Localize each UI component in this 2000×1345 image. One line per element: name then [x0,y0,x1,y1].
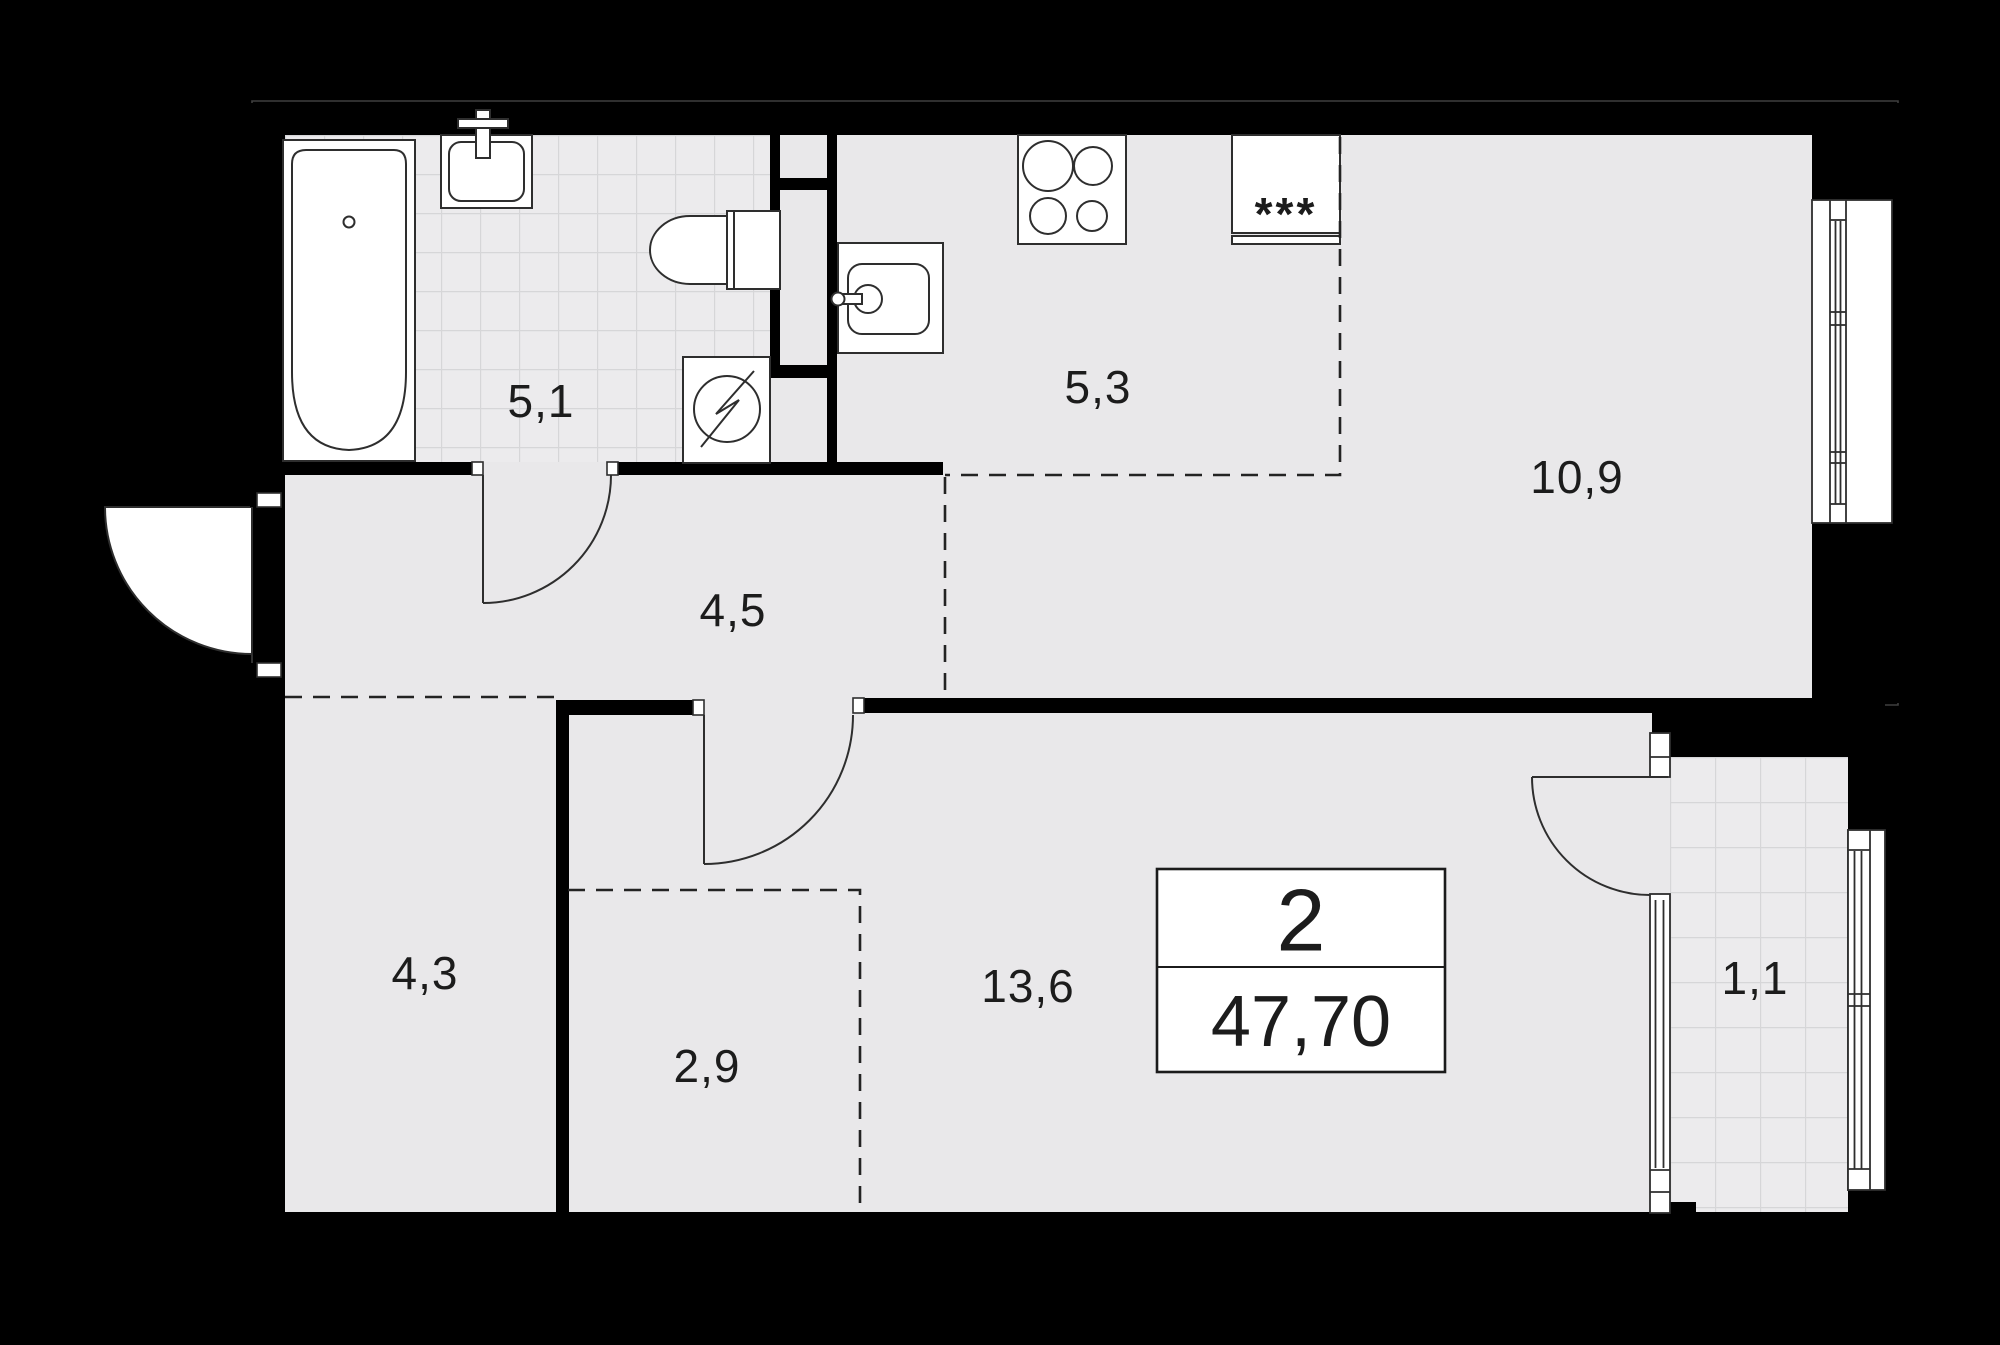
window-balcony-outer [1848,830,1885,1190]
wall-bedroom-top [853,698,1652,713]
room-label-living-kitchen: 10,9 [1530,451,1624,503]
kitchen-sink [832,243,944,353]
bathtub [283,140,415,461]
room-label-bedroom: 13,6 [981,960,1075,1012]
room-label-kitchen: 5,3 [1065,361,1132,413]
wall-left-upper [250,103,285,507]
fridge-symbol: *** [1255,188,1318,240]
room-label-room-small: 4,3 [392,947,459,999]
room-label-hallway: 4,5 [700,584,767,636]
wall-hall-bedroom [556,700,704,715]
wall-duct-bar1 [780,178,827,190]
wall-left-lower [250,663,285,1245]
wall-duct-bar2 [770,365,837,378]
wall-room-divider [556,700,569,1212]
wall-bath-bottom-left [285,462,483,475]
floor-plan-page: *** [0,0,2000,1345]
unit-rooms-count: 2 [1277,871,1326,970]
room-label-wardrobe: 2,9 [674,1040,741,1092]
electric-panel [683,357,770,463]
room-label-balcony: 1,1 [1722,952,1789,1004]
unit-info-box: 2 47,70 [1157,869,1445,1072]
floors [285,135,1848,1212]
wall-bath-bottom-right [611,462,943,475]
toilet [650,211,780,289]
room-label-bathroom: 5,1 [508,375,575,427]
wall-balcony-top [1652,698,1885,757]
wall-bottom [250,1212,1885,1245]
floor-plan: *** [0,0,2000,1345]
window-living [1812,200,1892,523]
wall-balcony-step [1670,1202,1696,1214]
stove [1018,135,1126,244]
unit-total-area: 47,70 [1211,982,1391,1062]
